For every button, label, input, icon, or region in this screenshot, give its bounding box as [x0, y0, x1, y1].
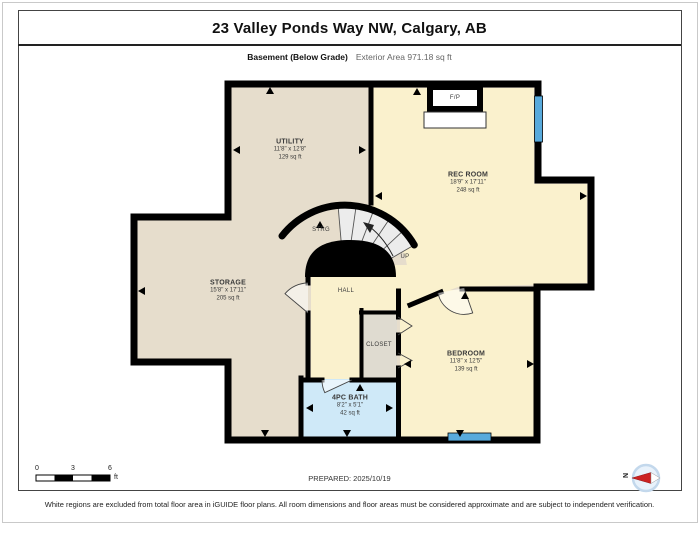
prepared-date: PREPARED: 2025/10/19	[0, 474, 699, 483]
fireplace-structure	[424, 87, 486, 128]
room-label-bedroom: BEDROOM 11'8" x 12'5" 139 sq ft	[447, 351, 485, 374]
room-label-hall: HALL	[338, 288, 354, 294]
window-rec-room	[535, 96, 543, 142]
room-label-closet: CLOSET	[366, 342, 392, 348]
scale-tick-3: 3	[71, 465, 75, 472]
compass-north-label: N	[623, 473, 630, 478]
scale-tick-0: 0	[35, 465, 39, 472]
floorplan-drawing	[0, 0, 699, 540]
room-label-rec-room: REC ROOM 18'9" x 17'11" 248 sq ft	[448, 172, 488, 195]
room-label-bath: 4PC BATH 8'2" x 5'1" 42 sq ft	[332, 395, 368, 418]
room-label-utility: UTILITY 11'8" x 12'8" 129 sq ft	[274, 139, 306, 162]
room-label-storage: STORAGE 15'8" x 17'11" 205 sq ft	[210, 280, 246, 303]
fireplace-label: F/P	[450, 95, 460, 101]
stairs-up-label: UP	[401, 254, 410, 260]
room-label-strg: STRG	[312, 227, 330, 233]
scale-tick-6: 6	[108, 465, 112, 472]
window-bedroom	[448, 433, 491, 441]
disclaimer-text: White regions are excluded from total fl…	[0, 500, 699, 509]
floorplan-page: 23 Valley Ponds Way NW, Calgary, AB Base…	[0, 0, 699, 540]
